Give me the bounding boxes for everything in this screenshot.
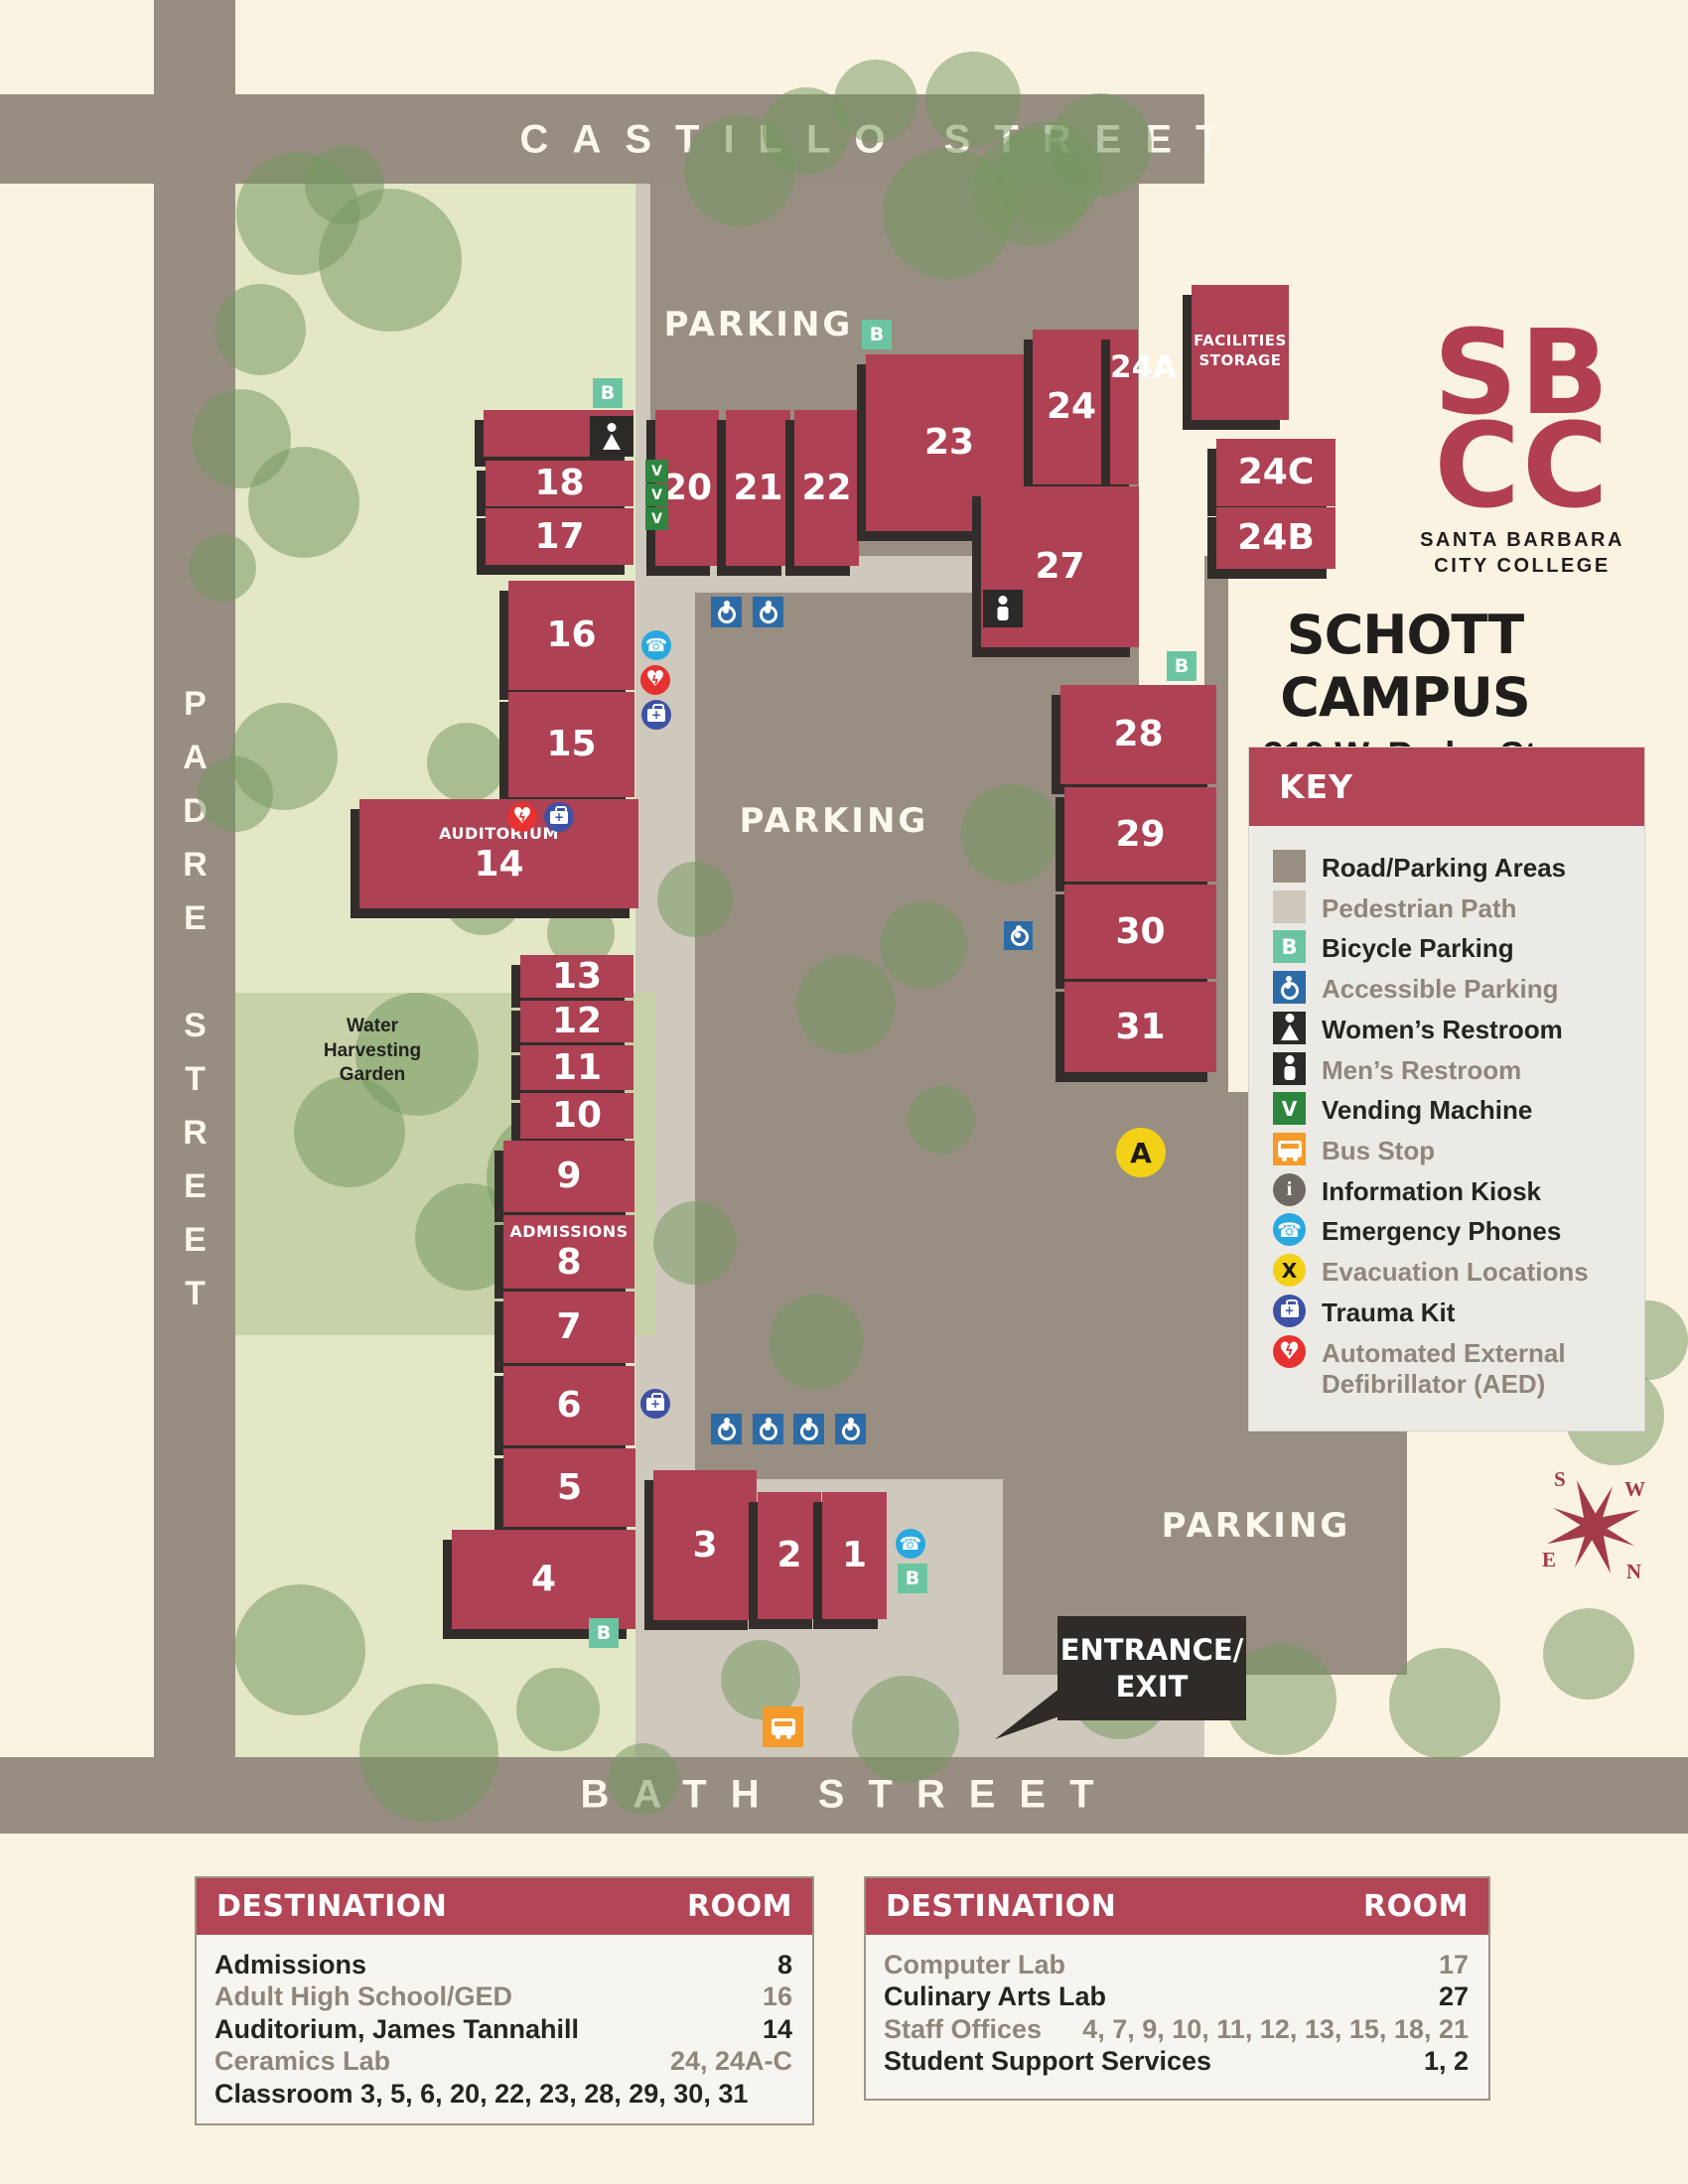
- info-icon: i: [1273, 1173, 1306, 1206]
- aed-icon: ♥ϟ: [1273, 1335, 1306, 1368]
- key-item-label: Bicycle Parking: [1322, 930, 1514, 965]
- key-item-label: Men’s Restroom: [1322, 1052, 1521, 1087]
- aed-icon: ♥ϟ: [507, 802, 537, 832]
- building-7: 7: [503, 1292, 634, 1363]
- building-30: 30: [1064, 885, 1216, 979]
- vend-icon: V: [645, 483, 668, 506]
- tree: [657, 862, 733, 937]
- key-item-label: Vending Machine: [1322, 1092, 1532, 1127]
- road-icon: [1273, 850, 1306, 883]
- building-22: 22: [794, 410, 859, 566]
- tree: [834, 60, 917, 143]
- building-24B: 24B: [1216, 507, 1336, 569]
- building-3: 3: [653, 1470, 757, 1620]
- table-row: Staff Offices4, 7, 9, 10, 11, 12, 13, 15…: [884, 2013, 1469, 2045]
- path-icon: [1273, 890, 1306, 923]
- access-icon: [711, 597, 742, 627]
- room-cell: 16: [763, 1980, 792, 2012]
- column-room: ROOM: [687, 1889, 792, 1924]
- vend-icon: V: [645, 460, 668, 482]
- tree: [925, 52, 1021, 147]
- map-key-panel: KEY Road/Parking AreasPedestrian PathBBi…: [1249, 748, 1644, 1431]
- table-row: Adult High School/GED16: [214, 1980, 792, 2012]
- water-harvesting-garden-label: Water Harvesting Garden: [324, 1015, 421, 1088]
- key-item: +Trauma Kit: [1273, 1295, 1628, 1329]
- destination-cell: Student Support Services: [884, 2045, 1211, 2077]
- bus-icon: [763, 1706, 803, 1747]
- building-12: 12: [520, 1001, 633, 1042]
- wr-m-icon: [1273, 1052, 1306, 1085]
- key-item-label: Emergency Phones: [1322, 1213, 1561, 1248]
- parking-label: PARKING: [664, 305, 854, 344]
- destination-cell: Admissions: [214, 1949, 366, 1980]
- key-item-label: Women’s Restroom: [1322, 1012, 1563, 1046]
- destination-cell: Staff Offices: [884, 2013, 1042, 2045]
- room-cell: 4, 7, 9, 10, 11, 12, 13, 15, 18, 21: [1082, 2013, 1469, 2045]
- key-item: ☎Emergency Phones: [1273, 1213, 1628, 1248]
- column-destination: DESTINATION: [886, 1889, 1116, 1924]
- sbcc-logo: SB CC SANTA BARBARA CITY COLLEGE: [1398, 326, 1646, 579]
- tree: [516, 1668, 600, 1751]
- evacA-icon: A: [1116, 1128, 1166, 1177]
- key-item: Pedestrian Path: [1273, 890, 1628, 925]
- building-1: 1: [822, 1492, 887, 1619]
- column-destination: DESTINATION: [216, 1889, 447, 1924]
- column-room: ROOM: [1363, 1889, 1469, 1924]
- access-icon: [1004, 921, 1033, 950]
- building-18: 18: [486, 461, 633, 506]
- destination-table-left: DESTINATIONROOMAdmissions8Adult High Sch…: [195, 1876, 814, 2125]
- building-8: ADMISSIONS8: [503, 1215, 634, 1289]
- room-cell: 1, 2: [1424, 2045, 1469, 2077]
- key-item: Road/Parking Areas: [1273, 850, 1628, 885]
- vend-icon: V: [645, 507, 668, 530]
- tree: [305, 145, 384, 224]
- building-24a-label: 24A: [1110, 349, 1177, 385]
- tree: [294, 1076, 405, 1187]
- parking-label: PARKING: [740, 801, 929, 841]
- destination-cell: Culinary Arts Lab: [884, 1980, 1106, 2012]
- aed-icon: ♥ϟ: [640, 665, 670, 695]
- entrance-sign-line1: ENTRANCE/: [1060, 1632, 1244, 1668]
- entrance-exit-sign: ENTRANCE/ EXIT: [1057, 1616, 1246, 1720]
- tree: [608, 1743, 679, 1815]
- key-item: VVending Machine: [1273, 1092, 1628, 1127]
- tree: [796, 955, 896, 1054]
- destination-cell: Auditorium, James Tannahill: [214, 2013, 579, 2045]
- building-9: 9: [503, 1141, 634, 1212]
- logo-letters-cc: CC: [1398, 419, 1646, 512]
- wr-w-icon: [1273, 1012, 1306, 1044]
- tree: [427, 723, 506, 802]
- access-icon: [1273, 971, 1306, 1004]
- trauma-icon: +: [640, 1389, 670, 1419]
- building-block: FACILITIESSTORAGE: [1192, 285, 1289, 420]
- destination-table-right: DESTINATIONROOMComputer Lab17Culinary Ar…: [864, 1876, 1490, 2101]
- logo-subtitle: SANTA BARBARA CITY COLLEGE: [1398, 527, 1646, 579]
- campus-map: CASTILLO STREET PADRE STREET BATH STREET…: [0, 0, 1688, 2184]
- compass-e: E: [1542, 1548, 1556, 1572]
- bike-icon: B: [862, 320, 892, 349]
- entrance-sign-line2: EXIT: [1116, 1669, 1189, 1705]
- bike-icon: B: [898, 1564, 927, 1593]
- key-item: XEvacuation Locations: [1273, 1254, 1628, 1289]
- room-cell: 14: [763, 2013, 792, 2045]
- key-item-label: Bus Stop: [1322, 1133, 1435, 1167]
- phone-icon: ☎: [1273, 1213, 1306, 1246]
- table-body: Computer Lab17Culinary Arts Lab27Staff O…: [866, 1935, 1488, 2078]
- tree: [214, 284, 306, 375]
- key-title: KEY: [1249, 748, 1644, 826]
- building-16: 16: [508, 581, 634, 690]
- key-item-label: Pedestrian Path: [1322, 890, 1517, 925]
- table-row: Auditorium, James Tannahill14: [214, 2013, 792, 2045]
- access-icon: [793, 1414, 824, 1444]
- key-item-label: Automated ExternalDefibrillator (AED): [1322, 1335, 1566, 1401]
- building-24: 24: [1033, 330, 1110, 484]
- destination-cell: Adult High School/GED: [214, 1980, 512, 2012]
- key-item-label: Information Kiosk: [1322, 1173, 1541, 1208]
- phone-icon: ☎: [896, 1529, 925, 1559]
- key-item-label: Accessible Parking: [1322, 971, 1558, 1006]
- compass-n: N: [1626, 1560, 1641, 1584]
- bus-icon: [1273, 1133, 1306, 1165]
- key-item: Bus Stop: [1273, 1133, 1628, 1167]
- building-29: 29: [1064, 787, 1216, 882]
- compass-w: W: [1624, 1477, 1645, 1502]
- key-item: Men’s Restroom: [1273, 1052, 1628, 1087]
- building-2: 2: [758, 1492, 821, 1619]
- building-11: 11: [520, 1045, 633, 1090]
- building-21: 21: [726, 410, 790, 566]
- table-body: Admissions8Adult High School/GED16Audito…: [197, 1935, 812, 2110]
- trauma-icon: +: [641, 700, 671, 730]
- access-icon: [753, 1414, 783, 1444]
- room-cell: 17: [1439, 1949, 1469, 1980]
- tree: [880, 901, 967, 989]
- building-15: 15: [508, 692, 634, 797]
- key-item: Women’s Restroom: [1273, 1012, 1628, 1046]
- access-icon: [711, 1414, 742, 1444]
- bike-icon: B: [1273, 930, 1306, 963]
- building-4: 4: [452, 1530, 635, 1629]
- logo-subtitle-line2: CITY COLLEGE: [1398, 553, 1646, 579]
- garden-label-line: Garden: [324, 1063, 421, 1088]
- tree: [852, 1676, 959, 1783]
- tree: [189, 534, 256, 602]
- room-cell: 24, 24A-C: [670, 2045, 792, 2077]
- table-row: Admissions8: [214, 1949, 792, 1980]
- tree: [359, 1684, 498, 1823]
- key-item: BBicycle Parking: [1273, 930, 1628, 965]
- tree: [1049, 93, 1152, 197]
- table-row: Ceramics Lab24, 24A-C: [214, 2045, 792, 2077]
- building-13: 13: [520, 955, 633, 998]
- bike-icon: B: [593, 378, 623, 408]
- key-item: ♥ϟAutomated ExternalDefibrillator (AED): [1273, 1335, 1628, 1401]
- destination-cell: Classroom 3, 5, 6, 20, 22, 23, 28, 29, 3…: [214, 2078, 748, 2110]
- key-item-label: Road/Parking Areas: [1322, 850, 1566, 885]
- key-items: Road/Parking AreasPedestrian PathBBicycl…: [1249, 826, 1644, 1401]
- building-24C: 24C: [1216, 439, 1336, 506]
- access-icon: [753, 597, 783, 627]
- evacX-icon: X: [1273, 1254, 1306, 1287]
- key-item-label: Evacuation Locations: [1322, 1254, 1589, 1289]
- table-row: Classroom 3, 5, 6, 20, 22, 23, 28, 29, 3…: [214, 2078, 792, 2110]
- building-5: 5: [503, 1448, 635, 1527]
- table-row: Culinary Arts Lab27: [884, 1980, 1469, 2012]
- parking-label: PARKING: [1162, 1506, 1351, 1546]
- table-header: DESTINATIONROOM: [866, 1878, 1488, 1935]
- building-17: 17: [486, 508, 633, 565]
- tree: [653, 1201, 737, 1285]
- tree: [1389, 1648, 1500, 1759]
- key-item: iInformation Kiosk: [1273, 1173, 1628, 1208]
- building-31: 31: [1064, 982, 1216, 1072]
- wr-m-icon: [983, 590, 1023, 627]
- phone-icon: ☎: [641, 630, 671, 660]
- access-icon: [835, 1414, 866, 1444]
- key-item: Accessible Parking: [1273, 971, 1628, 1006]
- tree: [769, 1295, 864, 1390]
- compass-rose: S W E N: [1534, 1467, 1653, 1586]
- tree: [198, 756, 273, 832]
- room-cell: 27: [1439, 1980, 1469, 2012]
- compass-s: S: [1554, 1467, 1566, 1492]
- key-item-label: Trauma Kit: [1322, 1295, 1455, 1329]
- destination-cell: Computer Lab: [884, 1949, 1065, 1980]
- tree: [248, 447, 359, 558]
- vend-icon: V: [1273, 1092, 1306, 1125]
- table-row: Student Support Services1, 2: [884, 2045, 1469, 2077]
- garden-label-line: Harvesting: [324, 1039, 421, 1064]
- trauma-icon: +: [1273, 1295, 1306, 1327]
- tree: [961, 784, 1060, 884]
- destination-cell: Ceramics Lab: [214, 2045, 390, 2077]
- table-row: Computer Lab17: [884, 1949, 1469, 1980]
- campus-name: SCHOTT CAMPUS: [1182, 604, 1628, 729]
- wr-w-icon: [590, 416, 633, 457]
- tree: [234, 1584, 365, 1715]
- garden-label-line: Water: [324, 1015, 421, 1039]
- bike-icon: B: [589, 1618, 619, 1648]
- tree: [1543, 1608, 1634, 1700]
- trauma-icon: +: [544, 802, 574, 832]
- building-10: 10: [520, 1093, 633, 1139]
- logo-subtitle-line1: SANTA BARBARA: [1398, 527, 1646, 553]
- tree: [908, 1086, 975, 1154]
- table-header: DESTINATIONROOM: [197, 1878, 812, 1935]
- building-6: 6: [503, 1366, 634, 1445]
- building-14: AUDITORIUM14: [359, 799, 638, 908]
- room-cell: 8: [777, 1949, 792, 1980]
